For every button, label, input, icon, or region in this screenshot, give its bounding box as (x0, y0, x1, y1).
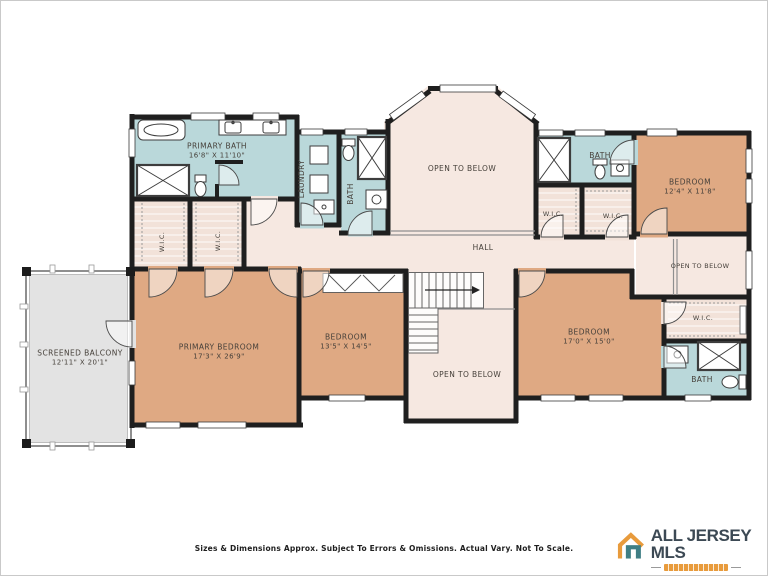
label-wic-5: W.I.C. (693, 314, 713, 322)
logo-text: ALL JERSEY MLS (651, 527, 767, 561)
label-open-below-center: OPEN TO BELOW (433, 370, 501, 380)
label-wic-4: W.I.C. (214, 231, 222, 251)
house-logo-icon (615, 527, 647, 565)
logo-tagline-ribbon (651, 564, 767, 571)
room-bath-upper-right (536, 135, 634, 185)
tagline-dash-left (651, 567, 661, 568)
label-primary-bath: PRIMARY BATH16'8" X 11'10" (187, 142, 247, 161)
label-open-below-top: OPEN TO BELOW (428, 164, 496, 174)
label-wic-3: W.I.C. (158, 232, 166, 252)
label-wic-1: W.I.C. (543, 210, 563, 218)
tagline-dash-right (731, 567, 741, 568)
label-hall: HALL (473, 243, 494, 253)
room-bath-lower-right (664, 341, 749, 398)
room-wic-3-4 (134, 199, 244, 269)
label-bath-upper-right: BATH (589, 151, 611, 161)
label-open-below-right: OPEN TO BELOW (671, 262, 730, 270)
label-bath-hall: BATH (346, 183, 356, 205)
label-screened-balcony: SCREENED BALCONY12'11" X 20'1" (37, 349, 122, 368)
floorplan-page: PRIMARY BATH16'8" X 11'10" LAUNDRY BATH … (0, 0, 768, 576)
label-primary-bedroom: PRIMARY BEDROOM17'3" X 26'9" (179, 343, 259, 362)
room-open-below-center (406, 271, 516, 421)
label-bedroom-center: BEDROOM13'5" X 14'5" (320, 333, 371, 352)
logo-all-jersey-mls: ALL JERSEY MLS (615, 527, 767, 571)
room-open-below-top (384, 86, 538, 233)
tagline-ribbon (664, 564, 728, 571)
label-laundry: LAUNDRY (297, 160, 307, 198)
label-bedroom-ne: BEDROOM12'4" X 11'8" (664, 178, 715, 197)
label-bath-lower-right: BATH (691, 375, 713, 385)
label-bedroom-se: BEDROOM17'0" X 15'0" (563, 328, 614, 347)
label-wic-2: W.I.C. (603, 212, 623, 220)
